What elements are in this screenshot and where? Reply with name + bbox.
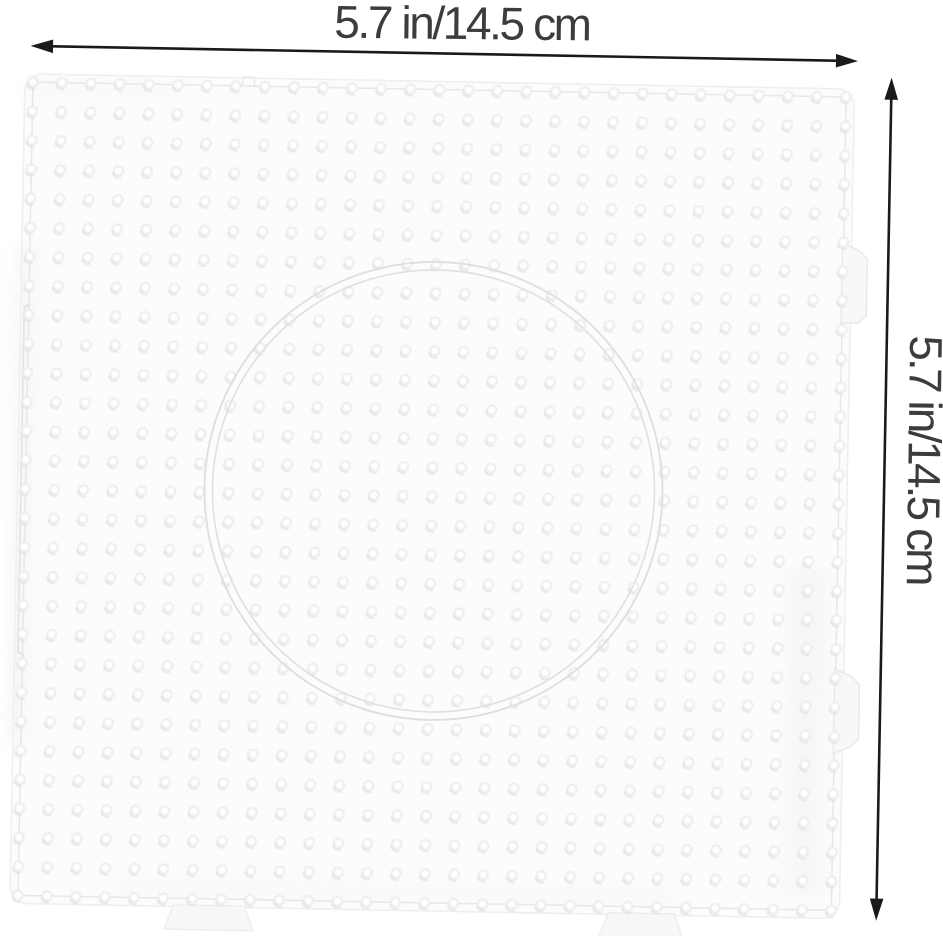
svg-text:5.7 in/14.5 cm: 5.7 in/14.5 cm (334, 0, 590, 50)
svg-text:5.7 in/14.5 cm: 5.7 in/14.5 cm (897, 335, 943, 585)
